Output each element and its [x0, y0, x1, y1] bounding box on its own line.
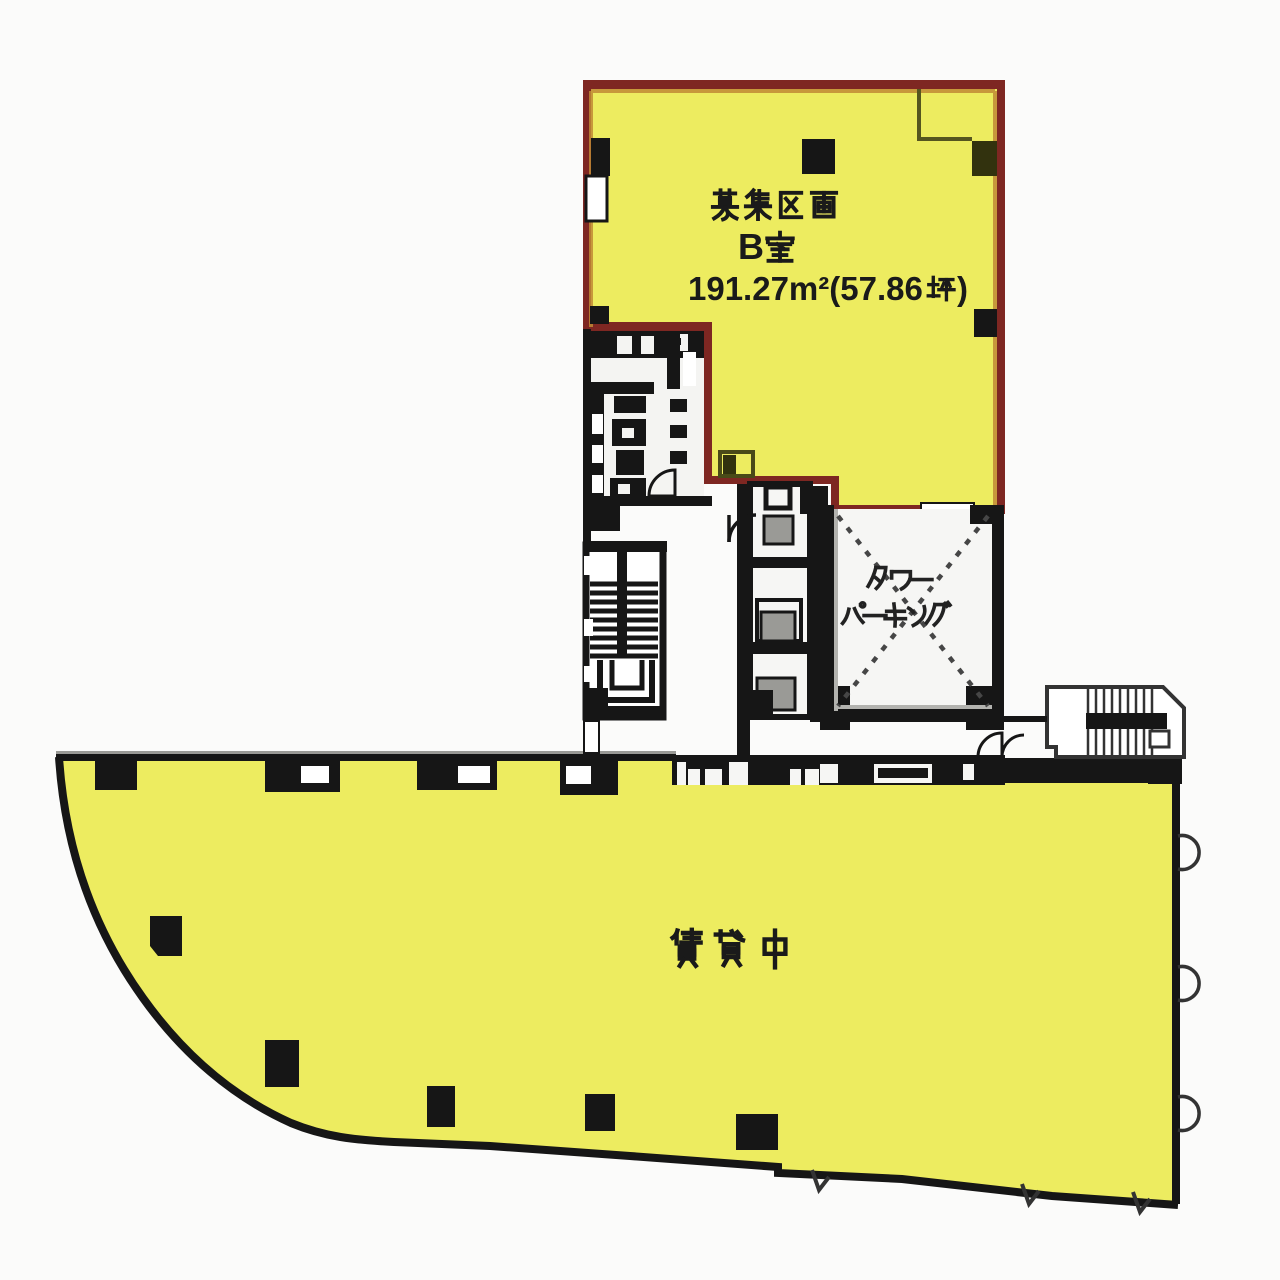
svg-text:): ) — [957, 270, 968, 307]
svg-text:191.27m²(57.86: 191.27m²(57.86 — [688, 270, 923, 307]
svg-text:B: B — [738, 226, 764, 267]
